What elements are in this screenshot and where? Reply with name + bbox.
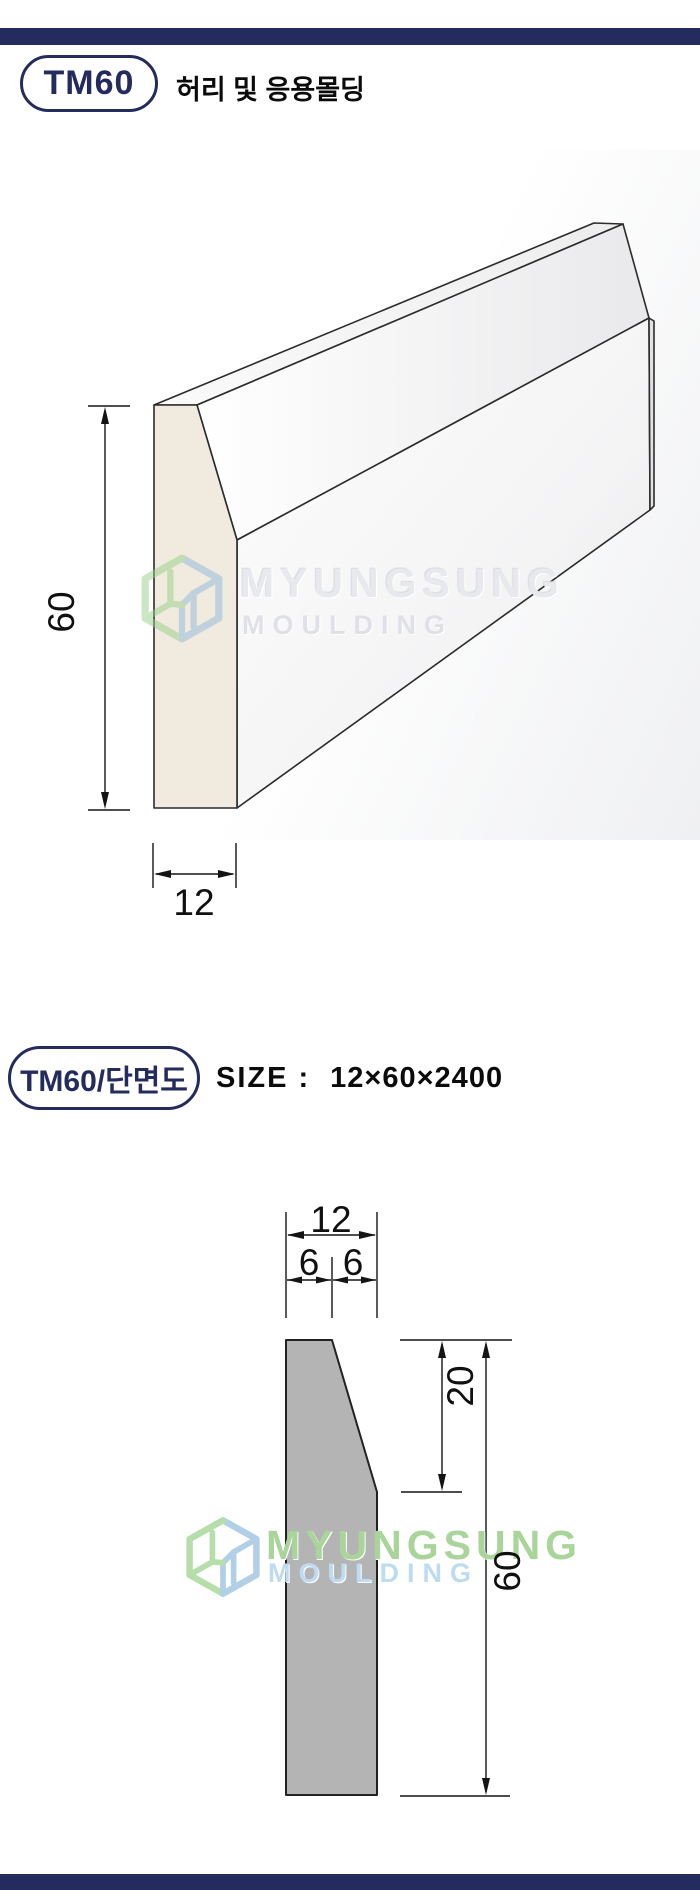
dim-section-chamfer: 20	[441, 1356, 481, 1416]
dim-section-half-left: 6	[289, 1243, 329, 1283]
product-category-label: 허리 및 응용몰딩	[176, 68, 365, 107]
section-badge: TM60/단면도	[8, 1046, 200, 1110]
dim-section-height: 60	[488, 1541, 528, 1601]
product-code-label: TM60	[44, 64, 135, 103]
top-divider-bar	[0, 28, 700, 45]
dim-3d-height: 60	[42, 582, 82, 642]
watermark-moulding-text: MOULDING	[268, 1558, 479, 1589]
dimension-lines-section	[286, 1212, 512, 1796]
size-label: SIZE :	[216, 1062, 310, 1095]
watermark-moulding-text: MOULDING	[242, 610, 453, 641]
bottom-divider-bar	[0, 1874, 700, 1890]
catalog-page: TM60 허리 및 응용몰딩	[0, 0, 700, 1890]
section-badge-label: TM60/단면도	[20, 1056, 188, 1100]
size-row: SIZE : 12×60×2400	[216, 1062, 503, 1095]
dim-section-width: 12	[291, 1200, 371, 1240]
drawing-3d-background	[0, 150, 700, 840]
watermark-cube-logo	[136, 550, 228, 647]
size-value: 12×60×2400	[330, 1062, 503, 1095]
dim-section-half-right: 6	[333, 1243, 373, 1283]
dim-3d-width: 12	[154, 883, 234, 923]
watermark-cube-logo	[182, 1513, 264, 1601]
watermark-brand-text: MYUNGSUNG	[240, 560, 565, 607]
product-code-badge: TM60	[20, 55, 158, 112]
